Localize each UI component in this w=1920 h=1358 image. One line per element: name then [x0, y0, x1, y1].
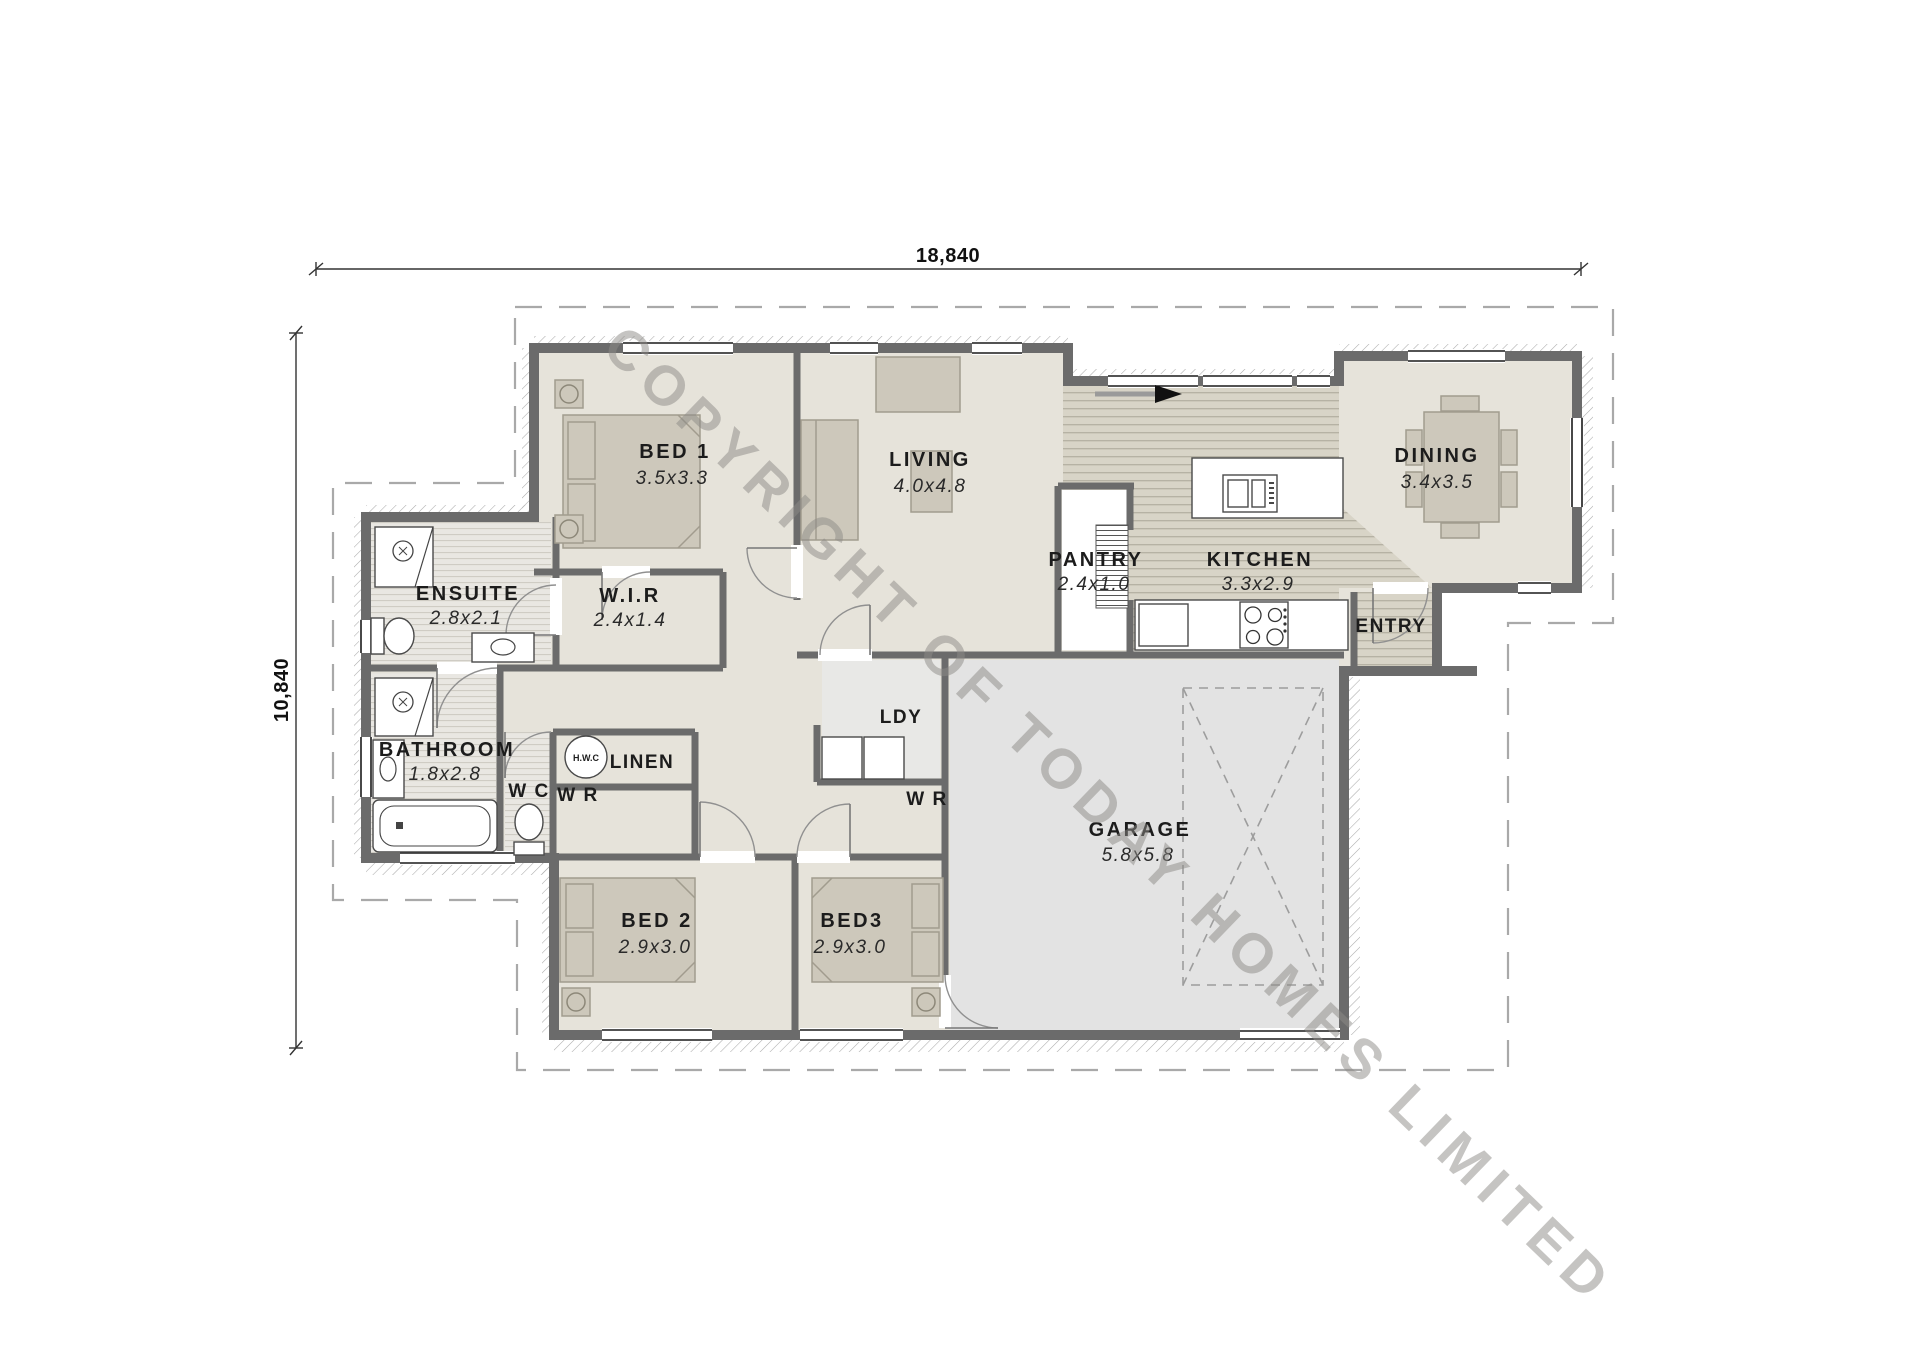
ensuite-vanity-icon	[472, 633, 534, 662]
pantry-label: PANTRY	[1049, 549, 1144, 571]
ensuite-toilet-icon	[371, 618, 414, 654]
living-label: LIVING	[889, 449, 971, 471]
tv-unit-icon	[876, 357, 960, 412]
wr-left-label: W R	[557, 785, 598, 806]
ensuite-dims: 2.8x2.1	[429, 608, 503, 629]
kitchen-island-icon	[1192, 458, 1343, 518]
floor-plan-page: 18,840 10,840 BED 1 3.5x3.3 LIVING 4.0x4…	[0, 0, 1920, 1358]
laundry-label: LDY	[880, 707, 923, 728]
floor-plan-canvas: 18,840 10,840 BED 1 3.5x3.3 LIVING 4.0x4…	[0, 0, 1920, 1358]
heater-icon	[555, 515, 583, 543]
bed3-label: BED3	[820, 910, 883, 932]
ensuite-label: ENSUITE	[416, 583, 520, 605]
kitchen-bench-icon	[1135, 600, 1348, 650]
bathroom-shower-icon	[375, 678, 433, 736]
bathroom-label: BATHROOM	[379, 739, 515, 761]
bed2-dims: 2.9x3.0	[618, 937, 692, 958]
living-dims: 4.0x4.8	[894, 476, 967, 497]
dining-label: DINING	[1395, 445, 1480, 467]
entry-label: ENTRY	[1355, 616, 1426, 637]
bed1-dims: 3.5x3.3	[636, 468, 709, 489]
kitchen-dims: 3.3x2.9	[1222, 574, 1295, 595]
bed3-dims: 2.9x3.0	[813, 937, 887, 958]
kitchen-label: KITCHEN	[1207, 549, 1313, 571]
bed2-label: BED 2	[621, 910, 692, 932]
width-dimension-label: 18,840	[916, 245, 980, 267]
heater-icon	[562, 988, 590, 1016]
height-dimension-label: 10,840	[271, 658, 293, 722]
wc-label: W C	[508, 781, 549, 802]
ensuite-shower-icon	[375, 527, 433, 587]
wc-toilet-icon	[514, 804, 544, 855]
wir-label: W.I.R	[599, 585, 660, 607]
dining-dims: 3.4x3.5	[1401, 472, 1474, 493]
pantry-dims: 2.4x1.0	[1057, 574, 1131, 595]
linen-label: LINEN	[610, 752, 675, 773]
hwc-label: H.W.C	[573, 753, 599, 763]
heater-icon	[555, 380, 583, 408]
wr-right-label: W R	[906, 789, 947, 810]
heater-icon	[912, 988, 940, 1016]
bathroom-dims: 1.8x2.8	[409, 764, 482, 785]
wir-dims: 2.4x1.4	[593, 610, 667, 631]
bathtub-icon	[373, 800, 497, 852]
